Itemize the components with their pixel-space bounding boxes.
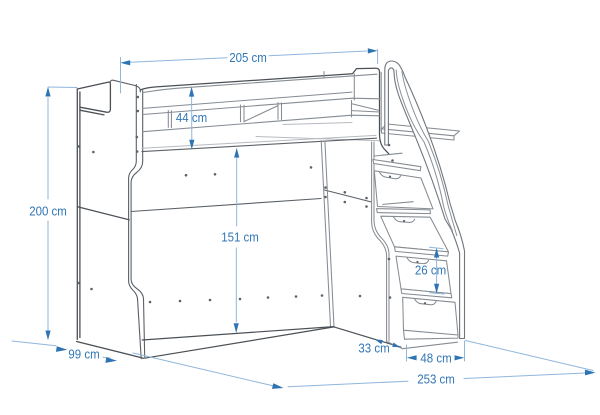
svg-text:33 cm: 33 cm: [358, 341, 389, 356]
svg-text:48 cm: 48 cm: [420, 351, 451, 366]
svg-text:44 cm: 44 cm: [176, 110, 207, 125]
svg-text:200 cm: 200 cm: [29, 204, 67, 219]
svg-text:26 cm: 26 cm: [415, 263, 446, 278]
svg-text:205 cm: 205 cm: [229, 50, 267, 65]
svg-text:99 cm: 99 cm: [68, 347, 99, 362]
svg-text:253 cm: 253 cm: [417, 372, 455, 387]
svg-text:151 cm: 151 cm: [221, 230, 259, 245]
